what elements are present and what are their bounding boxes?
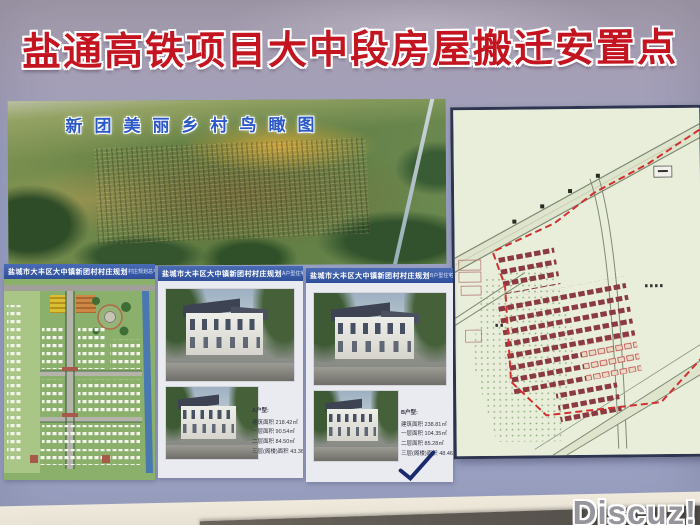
panel-header-sublabel: 村庄规划总平面图 (128, 268, 155, 275)
spec-line: 一层面积 104.35㎡ (401, 430, 449, 440)
panel-header: 盐城市大丰区大中镇新团村村庄规划 B户型住宅效果图 (306, 268, 453, 283)
checkmark-annotation (397, 450, 440, 482)
spec-line: 三层(阁楼)面积 43.36㎡ (252, 448, 300, 458)
type-b-panel: 盐城市大丰区大中镇新团村村庄规划 B户型住宅效果图 B户型: 建筑面积 2 (306, 268, 453, 482)
spec-line: 一层面积 90.54㎡ (252, 428, 300, 438)
type-a-specs: A户型: 建筑面积 218.42㎡ 一层面积 90.54㎡ 二层面积 84.50… (252, 407, 300, 457)
type-b-rendering-main (313, 292, 447, 386)
master-plan-drawing (4, 279, 155, 480)
plan-plaza-circle (98, 305, 122, 329)
plan-civic-orange (76, 295, 96, 313)
type-a-rendering-main (165, 288, 295, 382)
foreground-road (314, 367, 446, 385)
poster-title: 盐通高铁项目大中段房屋搬迁安置点 (0, 14, 700, 89)
panel-header: 盐城市大丰区大中镇新团村村庄规划 A户型住宅效果图 (158, 266, 303, 281)
house-block (335, 311, 414, 359)
panel-header-label: 盐城市大丰区大中镇新团村村庄规划 (162, 269, 282, 279)
panel-header-label: 盐城市大丰区大中镇新团村村庄规划 (8, 267, 128, 277)
panel-header-sublabel: A户型住宅效果图 (282, 270, 303, 277)
house-wall (327, 409, 377, 441)
spec-line: 建筑面积 238.81㎡ (401, 421, 449, 431)
foreground-road (314, 447, 398, 461)
house-wall (186, 313, 263, 355)
checkmark-icon (397, 450, 440, 482)
photo-scene: 盐通高铁项目大中段房屋搬迁安置点 新团美丽乡村鸟瞰图 (0, 0, 700, 525)
master-plan-panel: 盐城市大丰区大中镇新团村村庄规划 村庄规划总平面图 (4, 264, 155, 480)
spec-type-label: B户型: (401, 409, 449, 419)
type-a-panel: 盐城市大丰区大中镇新团村村庄规划 A户型住宅效果图 A户型: 建筑面积 2 (158, 266, 303, 478)
house-block (181, 401, 236, 438)
house-wall (181, 406, 236, 439)
type-b-rendering-alt (313, 390, 399, 462)
aerial-view-image: 新团美丽乡村鸟瞰图 (8, 99, 447, 266)
house-block (327, 405, 377, 441)
house-block (186, 307, 263, 355)
site-plan-map (450, 105, 700, 460)
house-wall (335, 317, 414, 359)
panel-header-label: 盐城市大丰区大中镇新团村村庄规划 (310, 271, 430, 281)
foreground-road (166, 445, 258, 459)
spec-line: 建筑面积 218.42㎡ (252, 419, 300, 429)
spec-type-label: A户型: (252, 407, 300, 417)
spec-line: 二层面积 85.28㎡ (401, 440, 449, 450)
panel-header-sublabel: B户型住宅效果图 (430, 272, 453, 279)
aerial-caption: 新团美丽乡村鸟瞰图 (8, 110, 385, 137)
plan-left-housing-column (7, 305, 22, 463)
map-outbuilding (654, 166, 672, 177)
master-plan-image (4, 279, 155, 480)
foreground-road (166, 363, 294, 381)
discuz-watermark: Discuz! (573, 494, 697, 525)
aerial-village-texture (94, 137, 369, 244)
type-a-rendering-alt (165, 386, 259, 460)
panel-header: 盐城市大丰区大中镇新团村村庄规划 村庄规划总平面图 (4, 264, 155, 279)
plan-top-road (4, 285, 155, 291)
site-plan-drawing (453, 108, 700, 457)
spec-line: 二层面积 84.50㎡ (252, 438, 300, 448)
